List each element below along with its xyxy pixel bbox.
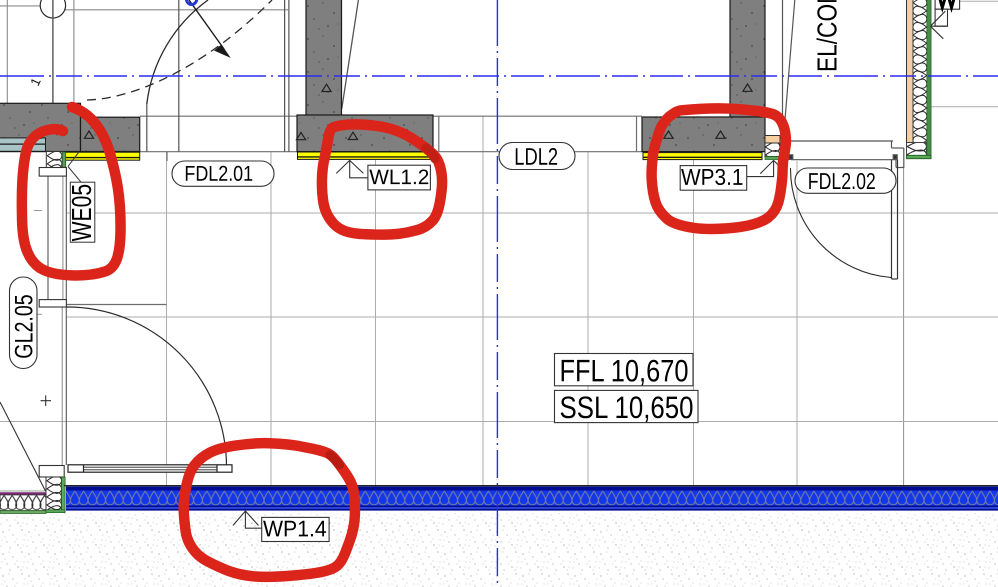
svg-text:WL1.2: WL1.2 [369, 166, 429, 189]
svg-text:FDL2.01: FDL2.01 [184, 162, 253, 186]
svg-text:FDL2.02: FDL2.02 [808, 168, 876, 194]
svg-text:FFL 10,670: FFL 10,670 [559, 353, 688, 388]
svg-text:WP3.1: WP3.1 [681, 164, 744, 190]
svg-text:WP1.4: WP1.4 [263, 515, 327, 541]
svg-text:EL/COM: EL/COM [812, 0, 843, 72]
svg-text:GL2.05: GL2.05 [10, 294, 38, 358]
svg-text:SSL 10,650: SSL 10,650 [559, 390, 693, 425]
svg-text:WE05: WE05 [66, 184, 97, 242]
svg-text:LDL2: LDL2 [514, 144, 558, 171]
